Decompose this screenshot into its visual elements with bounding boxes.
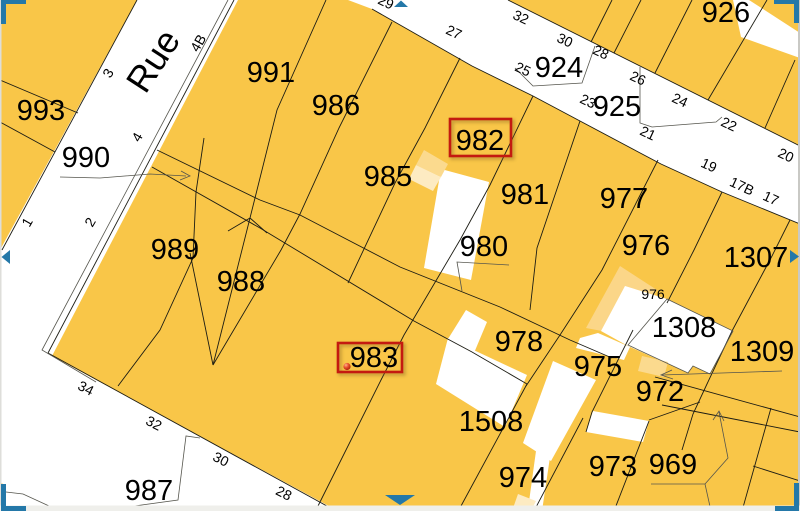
svg-text:993: 993	[17, 95, 65, 127]
svg-text:991: 991	[247, 57, 295, 89]
svg-text:977: 977	[600, 183, 648, 215]
svg-text:983: 983	[350, 342, 398, 374]
svg-text:975: 975	[574, 351, 622, 383]
svg-text:969: 969	[649, 449, 697, 481]
svg-text:926: 926	[702, 0, 750, 29]
svg-text:987: 987	[125, 475, 173, 507]
svg-text:985: 985	[364, 161, 412, 193]
svg-text:976: 976	[622, 230, 670, 262]
svg-text:976: 976	[641, 286, 665, 302]
svg-text:974: 974	[499, 462, 547, 494]
svg-text:1308: 1308	[652, 312, 717, 344]
svg-text:1307: 1307	[724, 242, 789, 274]
svg-text:972: 972	[636, 376, 684, 408]
svg-text:980: 980	[460, 231, 508, 263]
svg-text:981: 981	[501, 179, 549, 211]
svg-text:990: 990	[62, 142, 110, 174]
svg-text:989: 989	[151, 234, 199, 266]
svg-text:925: 925	[593, 91, 641, 123]
svg-text:1508: 1508	[459, 406, 524, 438]
svg-text:986: 986	[312, 90, 360, 122]
svg-text:978: 978	[495, 326, 543, 358]
svg-text:988: 988	[217, 266, 265, 298]
svg-text:924: 924	[535, 52, 583, 84]
svg-text:1309: 1309	[730, 336, 795, 368]
svg-text:982: 982	[456, 125, 504, 157]
svg-text:973: 973	[589, 451, 637, 483]
